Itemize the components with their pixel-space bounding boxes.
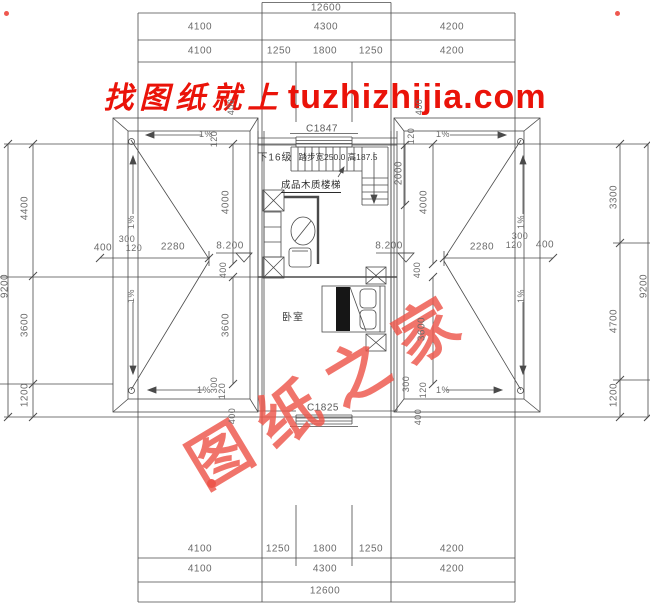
dim-top-r3-1250b: 1250	[359, 46, 383, 57]
dim-120-top-right: 120	[406, 128, 416, 145]
dim-400-bot-left: 400	[227, 408, 237, 425]
slope-label-right-side-up: 1%	[516, 215, 526, 229]
dim-4000-right: 4000	[419, 190, 430, 214]
slope-label-right-top: 1%	[436, 129, 450, 139]
slope-label-left-top: 1%	[199, 129, 213, 139]
dim-3600-left: 3600	[221, 313, 232, 337]
dim-bot-r1-4100: 4100	[188, 544, 212, 555]
dim-400-mid-right: 400	[536, 240, 554, 251]
dim-120-bot-left: 120	[217, 383, 227, 400]
dim-top-4300: 4300	[314, 22, 338, 33]
dim-bot-r1-1250b: 1250	[359, 544, 383, 555]
dim-left-4400: 4400	[20, 196, 31, 220]
dim-top-r3-1250a: 1250	[267, 46, 291, 57]
red-dot-top-left	[4, 11, 9, 16]
dim-400-under-left: 400	[218, 262, 228, 279]
stair-spec-label: 踏步宽250.0 高187.5	[299, 151, 378, 163]
dim-top-r3-4200: 4200	[440, 46, 464, 57]
dim-left-overall: 9200	[0, 274, 11, 298]
dim-bot-r1-4200: 4200	[440, 544, 464, 555]
dim-400-mid-left: 400	[94, 243, 112, 254]
dim-right-4700: 4700	[609, 309, 620, 333]
central-body-walls	[258, 131, 397, 411]
elevation-label-left: 8.200	[216, 241, 244, 252]
stamp-stroke-tip	[207, 479, 216, 488]
dim-top-r3-4100: 4100	[188, 46, 212, 57]
floor-plan-page: 找图纸就上 tuzhizhijia.com 图 纸 之 家 12600 4100…	[0, 0, 650, 606]
dim-right-3300: 3300	[609, 185, 620, 209]
slope-label-right-side-down: 1%	[516, 289, 526, 303]
dim-2280-left: 2280	[161, 242, 185, 253]
window-c1847	[290, 134, 358, 148]
stair-note-label: 成品木质楼梯	[281, 177, 341, 193]
slope-label-left-side-down: 1%	[126, 289, 136, 303]
dim-bot-r1-1800: 1800	[313, 544, 337, 555]
watermark-title-cn: 找图纸就上	[103, 81, 283, 116]
dim-right-overall: 9200	[639, 274, 650, 298]
dim-bot-r2-4100: 4100	[188, 564, 212, 575]
stair-steps-label: 下16级	[257, 149, 292, 164]
dim-400-top-left: 400	[226, 99, 236, 116]
sofa-set	[263, 190, 318, 278]
dim-left-1200: 1200	[20, 383, 31, 407]
window-label-c1825: C1825	[307, 403, 339, 414]
dim-300-mid-right: 300	[512, 231, 529, 241]
dim-120-bot-right: 120	[418, 382, 428, 399]
elevation-label-right: 8.200	[375, 241, 403, 252]
dim-120-mid-right: 120	[506, 240, 523, 250]
dim-top-total: 12600	[311, 3, 341, 14]
dim-2280-right: 2280	[470, 242, 494, 253]
dim-top-4200: 4200	[440, 22, 464, 33]
red-dot-top-right	[615, 11, 620, 16]
dim-120-mid-left: 120	[126, 243, 143, 253]
dim-400-under-right: 400	[412, 262, 422, 279]
dim-bot-r2-4200: 4200	[440, 564, 464, 575]
slope-label-left-bottom: 1%	[197, 385, 211, 395]
window-label-c1847: C1847	[306, 124, 338, 135]
bed-set	[322, 267, 386, 351]
dim-400-top-right: 400	[414, 99, 424, 116]
dim-top-r3-1800: 1800	[313, 46, 337, 57]
dim-right-1200: 1200	[609, 383, 620, 407]
watermark-title: 找图纸就上 tuzhizhijia.com	[103, 80, 546, 114]
dim-left-3600: 3600	[20, 313, 31, 337]
bedroom-label: 卧室	[282, 309, 304, 324]
dim-300-bot-right: 300	[401, 376, 411, 393]
dim-2000: 2000	[394, 161, 405, 185]
dim-3600-right: 3600	[417, 317, 428, 341]
dim-bot-r2-4300: 4300	[313, 564, 337, 575]
elevation-markers	[216, 253, 414, 262]
dim-top-4100: 4100	[188, 22, 212, 33]
slope-label-left-side-up: 1%	[126, 215, 136, 229]
dim-bot-total: 12600	[310, 586, 340, 597]
slope-label-right-bottom: 1%	[436, 385, 450, 395]
dim-4000-left: 4000	[221, 190, 232, 214]
dim-bot-r1-1250a: 1250	[266, 544, 290, 555]
dim-400-bot-right: 400	[413, 409, 423, 426]
